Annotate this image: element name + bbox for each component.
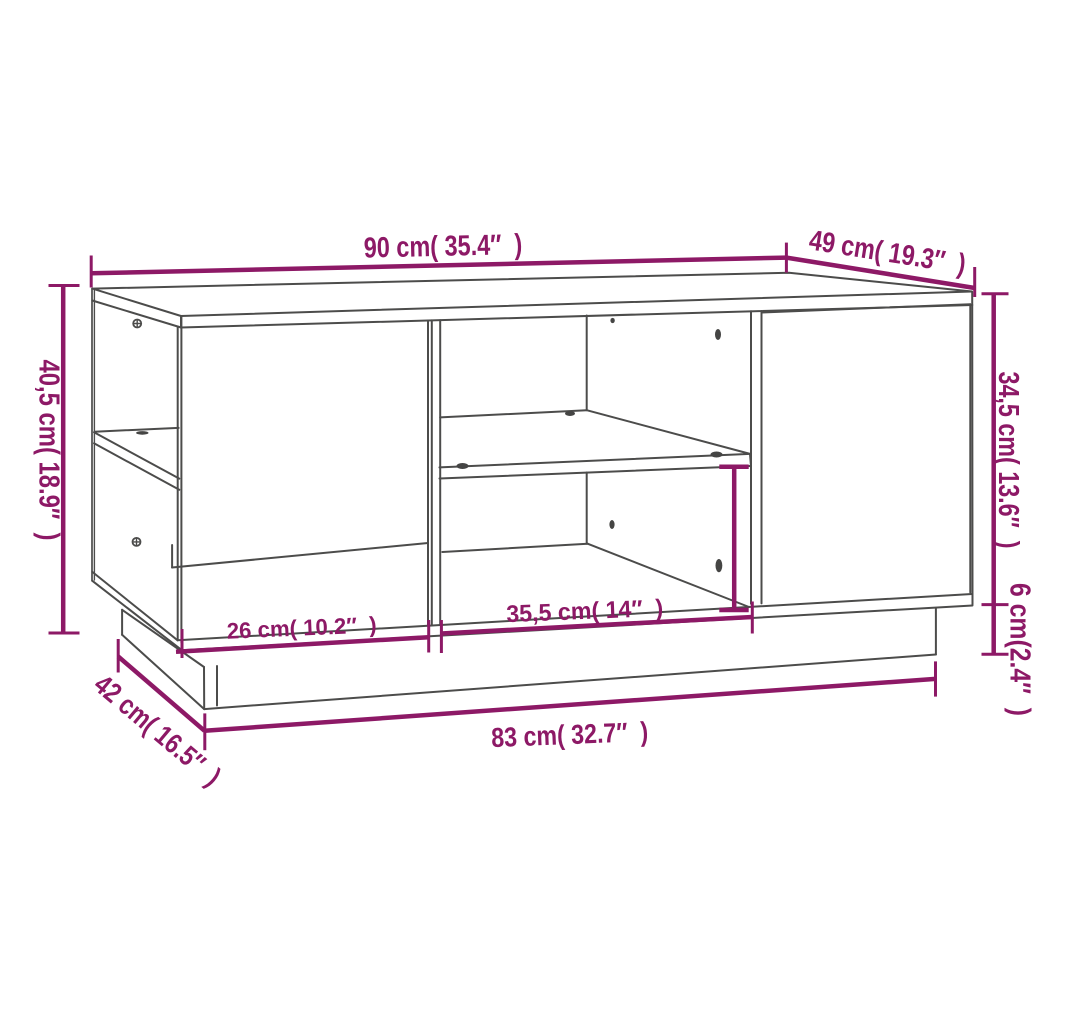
svg-text:40,5 cm( 18.9″ ): 40,5 cm( 18.9″ ) bbox=[33, 360, 65, 541]
svg-text:6 cm(2.4″ ): 6 cm(2.4″ ) bbox=[1004, 583, 1036, 716]
svg-text:34,5 cm( 13.6″ ): 34,5 cm( 13.6″ ) bbox=[992, 372, 1024, 549]
svg-text:90 cm( 35.4″ ): 90 cm( 35.4″ ) bbox=[363, 229, 522, 265]
svg-text:83 cm( 32.7″ ): 83 cm( 32.7″ ) bbox=[491, 716, 649, 753]
